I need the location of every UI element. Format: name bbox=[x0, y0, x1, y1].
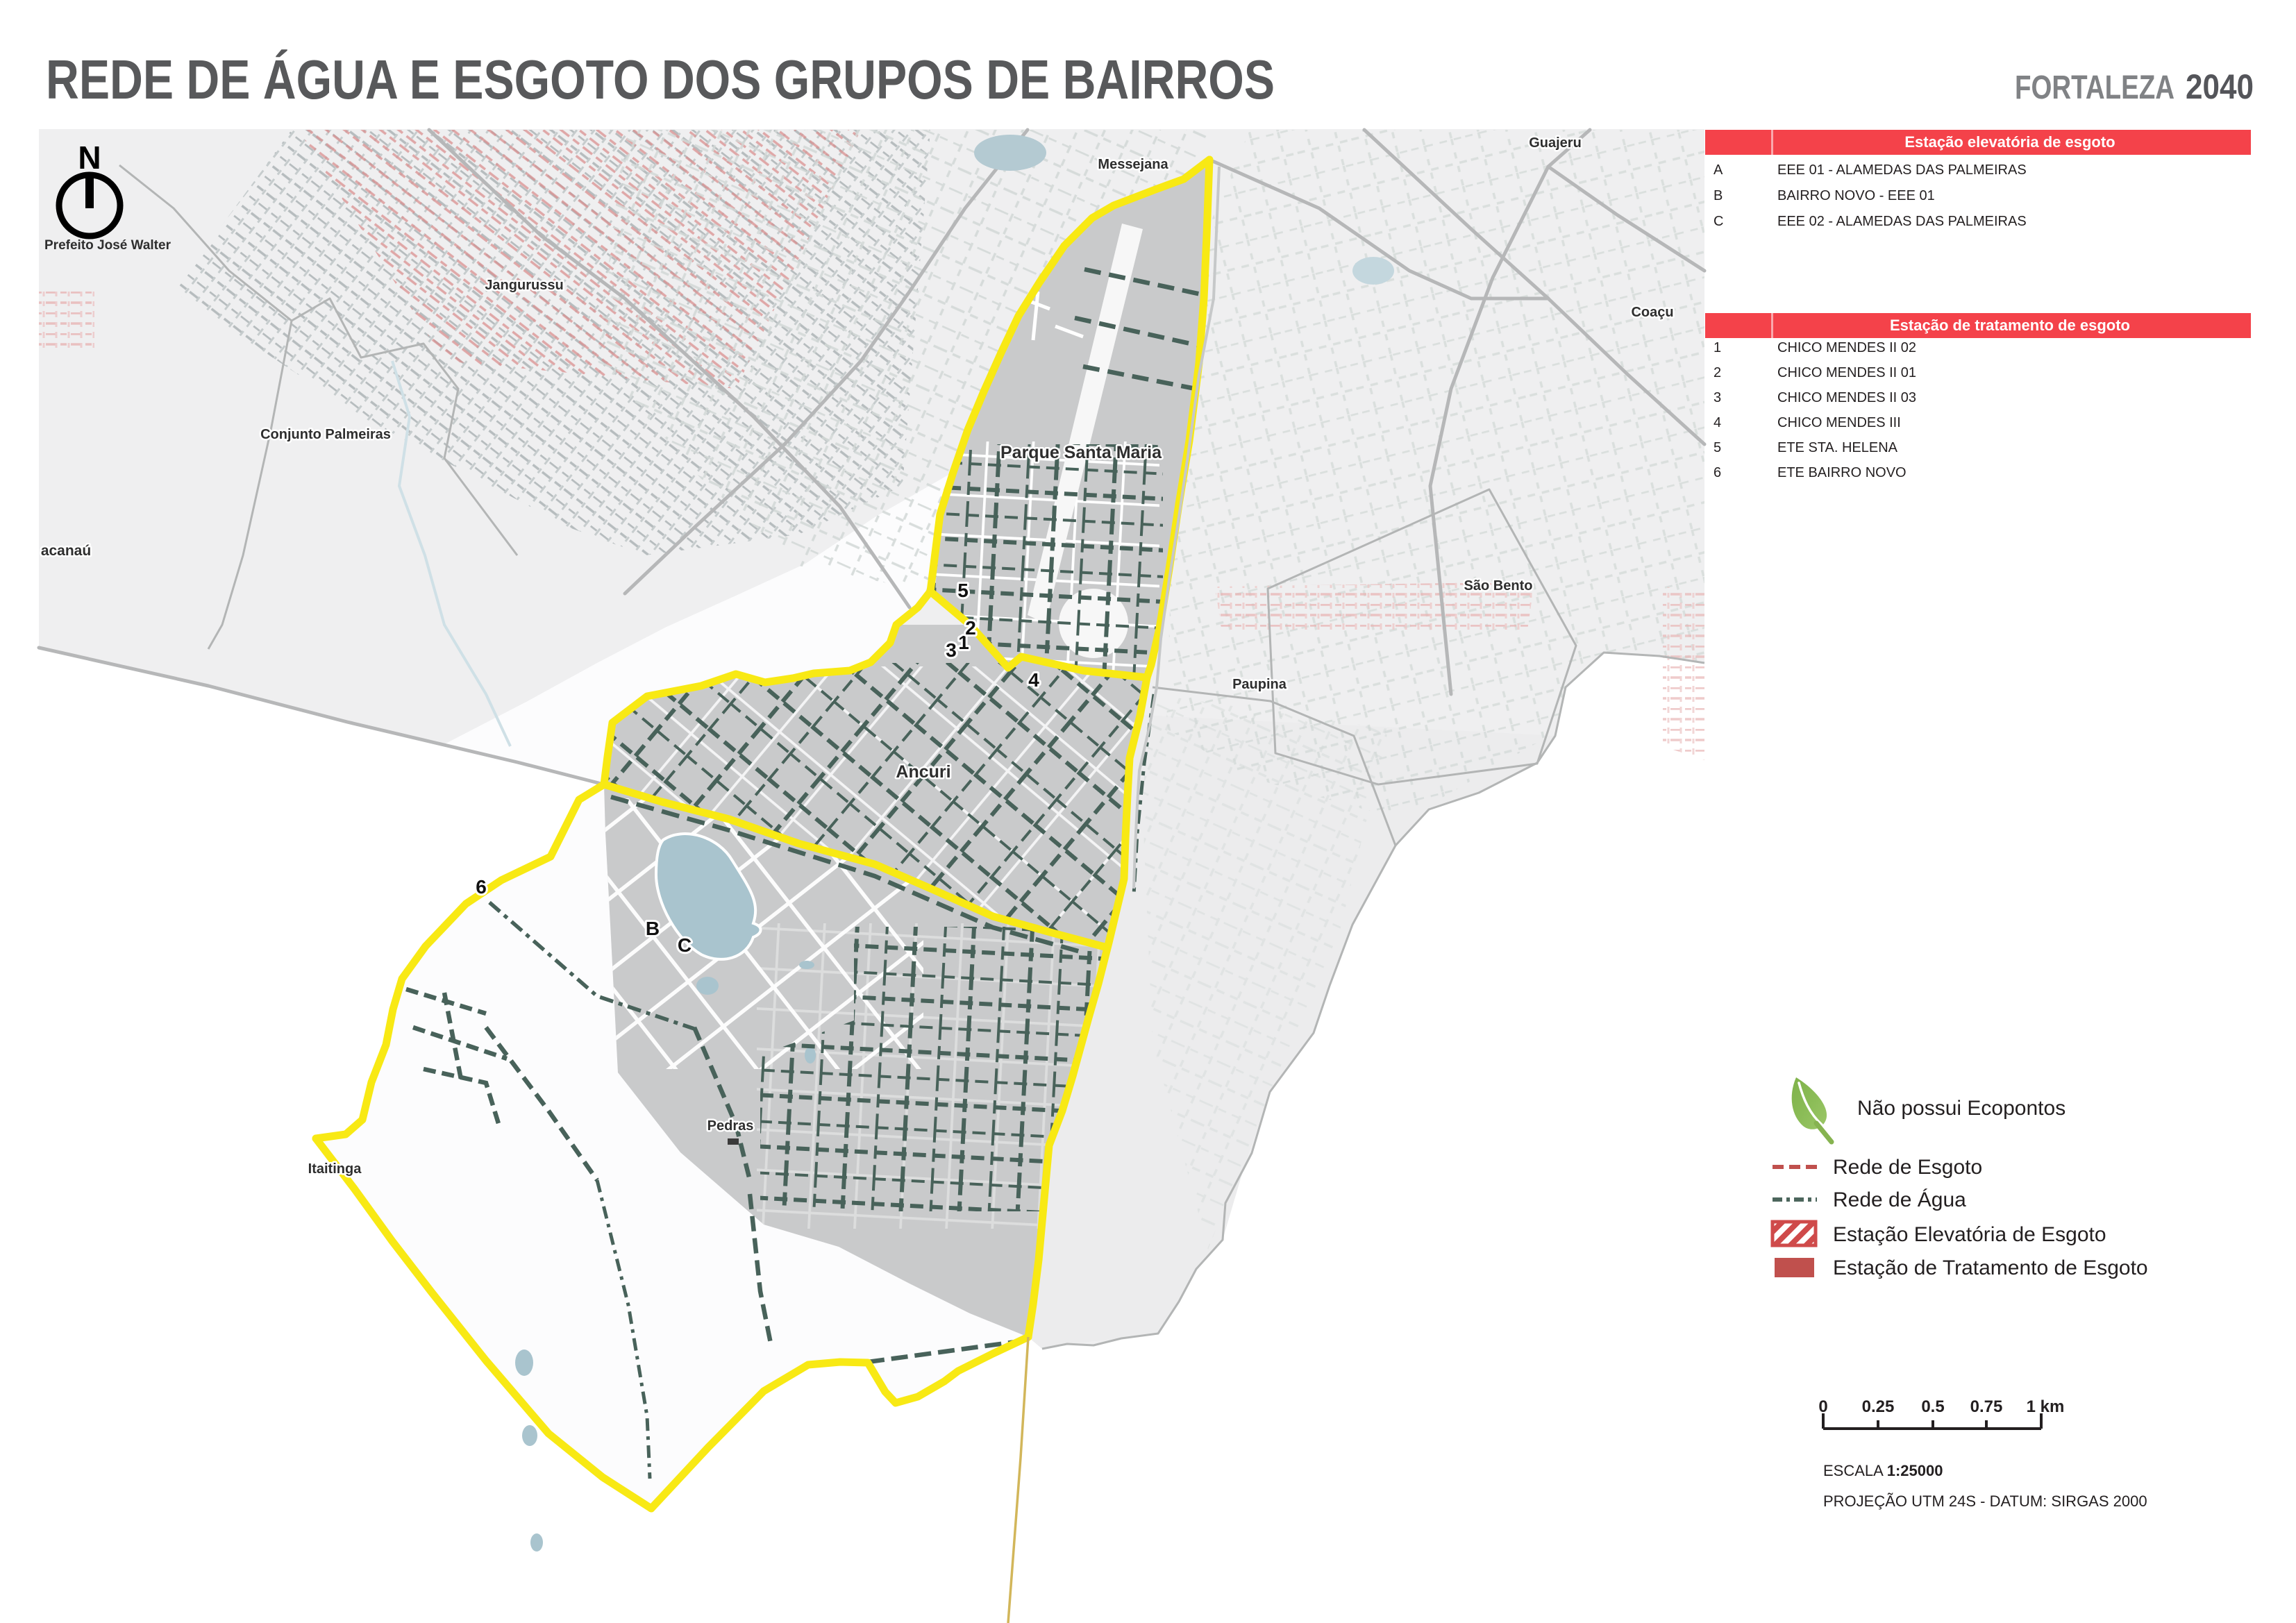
svg-text:B: B bbox=[646, 918, 660, 939]
svg-text:Guajeru: Guajeru bbox=[1529, 135, 1582, 151]
svg-text:3: 3 bbox=[1713, 390, 1721, 405]
svg-text:6: 6 bbox=[476, 876, 487, 898]
svg-text:2: 2 bbox=[965, 617, 976, 639]
svg-text:B: B bbox=[1713, 188, 1723, 203]
svg-text:Messejana: Messejana bbox=[1098, 157, 1168, 172]
svg-text:CHICO MENDES II 02: CHICO MENDES II 02 bbox=[1777, 340, 1916, 355]
svg-text:4: 4 bbox=[1713, 415, 1721, 430]
svg-text:CHICO MENDES II 01: CHICO MENDES II 01 bbox=[1777, 365, 1916, 380]
svg-text:EEE 02 - ALAMEDAS DAS PALMEIRA: EEE 02 - ALAMEDAS DAS PALMEIRAS bbox=[1777, 214, 2027, 229]
svg-text:0.75: 0.75 bbox=[1970, 1397, 2003, 1416]
svg-text:Jangurussu: Jangurussu bbox=[485, 278, 563, 293]
svg-text:Rede de Água: Rede de Água bbox=[1833, 1188, 1966, 1211]
svg-text:Conjunto Palmeiras: Conjunto Palmeiras bbox=[260, 427, 391, 442]
svg-text:2040: 2040 bbox=[2186, 67, 2254, 106]
svg-text:3: 3 bbox=[946, 639, 957, 661]
svg-text:acanaú: acanaú bbox=[41, 543, 91, 559]
svg-text:C: C bbox=[1713, 214, 1723, 229]
svg-text:Estação Elevatória de Esgoto: Estação Elevatória de Esgoto bbox=[1833, 1223, 2106, 1246]
svg-text:0.25: 0.25 bbox=[1862, 1397, 1895, 1416]
svg-text:Prefeito José Walter: Prefeito José Walter bbox=[44, 238, 171, 253]
svg-text:1 km: 1 km bbox=[2027, 1397, 2065, 1416]
svg-text:5: 5 bbox=[1713, 440, 1721, 455]
svg-text:0: 0 bbox=[1818, 1397, 1827, 1416]
svg-text:Não possui Ecopontos: Não possui Ecopontos bbox=[1857, 1097, 2065, 1120]
svg-text:ESCALA 1:25000: ESCALA 1:25000 bbox=[1823, 1462, 1943, 1479]
svg-text:2: 2 bbox=[1713, 365, 1721, 380]
svg-text:PROJEÇÃO UTM 24S - DATUM: SIRG: PROJEÇÃO UTM 24S - DATUM: SIRGAS 2000 bbox=[1823, 1492, 2147, 1510]
svg-text:Rede de Esgoto: Rede de Esgoto bbox=[1833, 1156, 1982, 1179]
svg-text:Estação de tratamento de esgot: Estação de tratamento de esgoto bbox=[1890, 317, 2130, 334]
svg-text:ETE BAIRRO NOVO: ETE BAIRRO NOVO bbox=[1777, 465, 1907, 480]
svg-text:1: 1 bbox=[1713, 340, 1721, 355]
svg-text:ETE STA. HELENA: ETE STA. HELENA bbox=[1777, 440, 1898, 455]
svg-text:N: N bbox=[78, 140, 101, 176]
svg-text:5: 5 bbox=[957, 580, 969, 601]
svg-text:CHICO MENDES III: CHICO MENDES III bbox=[1777, 415, 1901, 430]
svg-text:Ancuri: Ancuri bbox=[896, 762, 950, 782]
svg-text:REDE DE ÁGUA E ESGOTO DOS GRUP: REDE DE ÁGUA E ESGOTO DOS GRUPOS DE BAIR… bbox=[46, 49, 1275, 110]
svg-text:Paupina: Paupina bbox=[1232, 677, 1287, 692]
svg-text:Pedras: Pedras bbox=[707, 1118, 754, 1134]
svg-text:EEE 01 - ALAMEDAS DAS PALMEIR: EEE 01 - ALAMEDAS DAS PALMEIRAS bbox=[1777, 162, 2027, 178]
svg-text:Coaçu: Coaçu bbox=[1631, 305, 1673, 320]
svg-text:6: 6 bbox=[1713, 465, 1721, 480]
svg-text:4: 4 bbox=[1028, 669, 1039, 691]
svg-text:BAIRRO NOVO - EEE 01: BAIRRO NOVO - EEE 01 bbox=[1777, 188, 1935, 203]
svg-text:Estação de Tratamento de Esgot: Estação de Tratamento de Esgoto bbox=[1833, 1256, 2148, 1279]
svg-text:CHICO MENDES II 03: CHICO MENDES II 03 bbox=[1777, 390, 1916, 405]
svg-text:A: A bbox=[1713, 162, 1723, 178]
svg-text:Itaitinga: Itaitinga bbox=[308, 1161, 362, 1177]
svg-text:C: C bbox=[678, 934, 692, 956]
svg-text:FORTALEZA: FORTALEZA bbox=[2015, 69, 2175, 106]
svg-text:0.5: 0.5 bbox=[1921, 1397, 1944, 1416]
svg-text:São Bento: São Bento bbox=[1464, 578, 1533, 594]
svg-text:Parque Santa Maria: Parque Santa Maria bbox=[1000, 443, 1162, 462]
svg-text:Estação elevatória de esgoto: Estação elevatória de esgoto bbox=[1904, 133, 2115, 151]
